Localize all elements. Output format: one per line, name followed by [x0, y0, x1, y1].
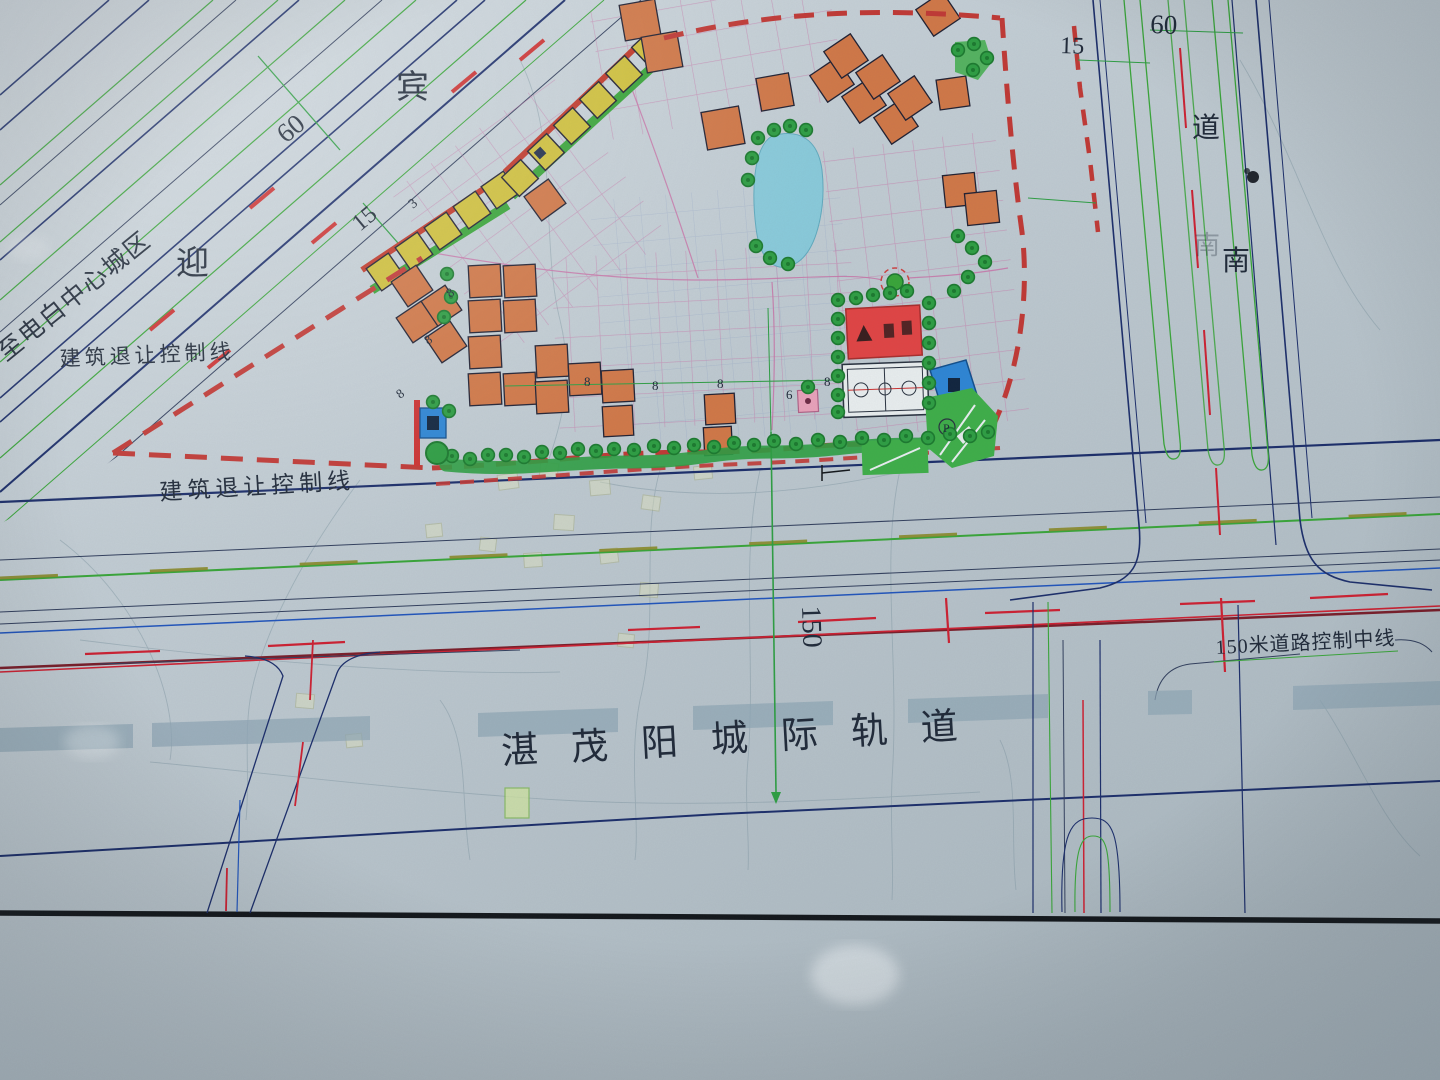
photo-artifacts	[0, 0, 1440, 1080]
planning-map-photo: 宾 迎 至电白中心城区 建筑退让控制线 建筑退让控制线 150米道路控制中线 湛…	[0, 0, 1440, 1080]
planning-map-canvas: 宾 迎 至电白中心城区 建筑退让控制线 建筑退让控制线 150米道路控制中线 湛…	[0, 0, 1440, 1080]
